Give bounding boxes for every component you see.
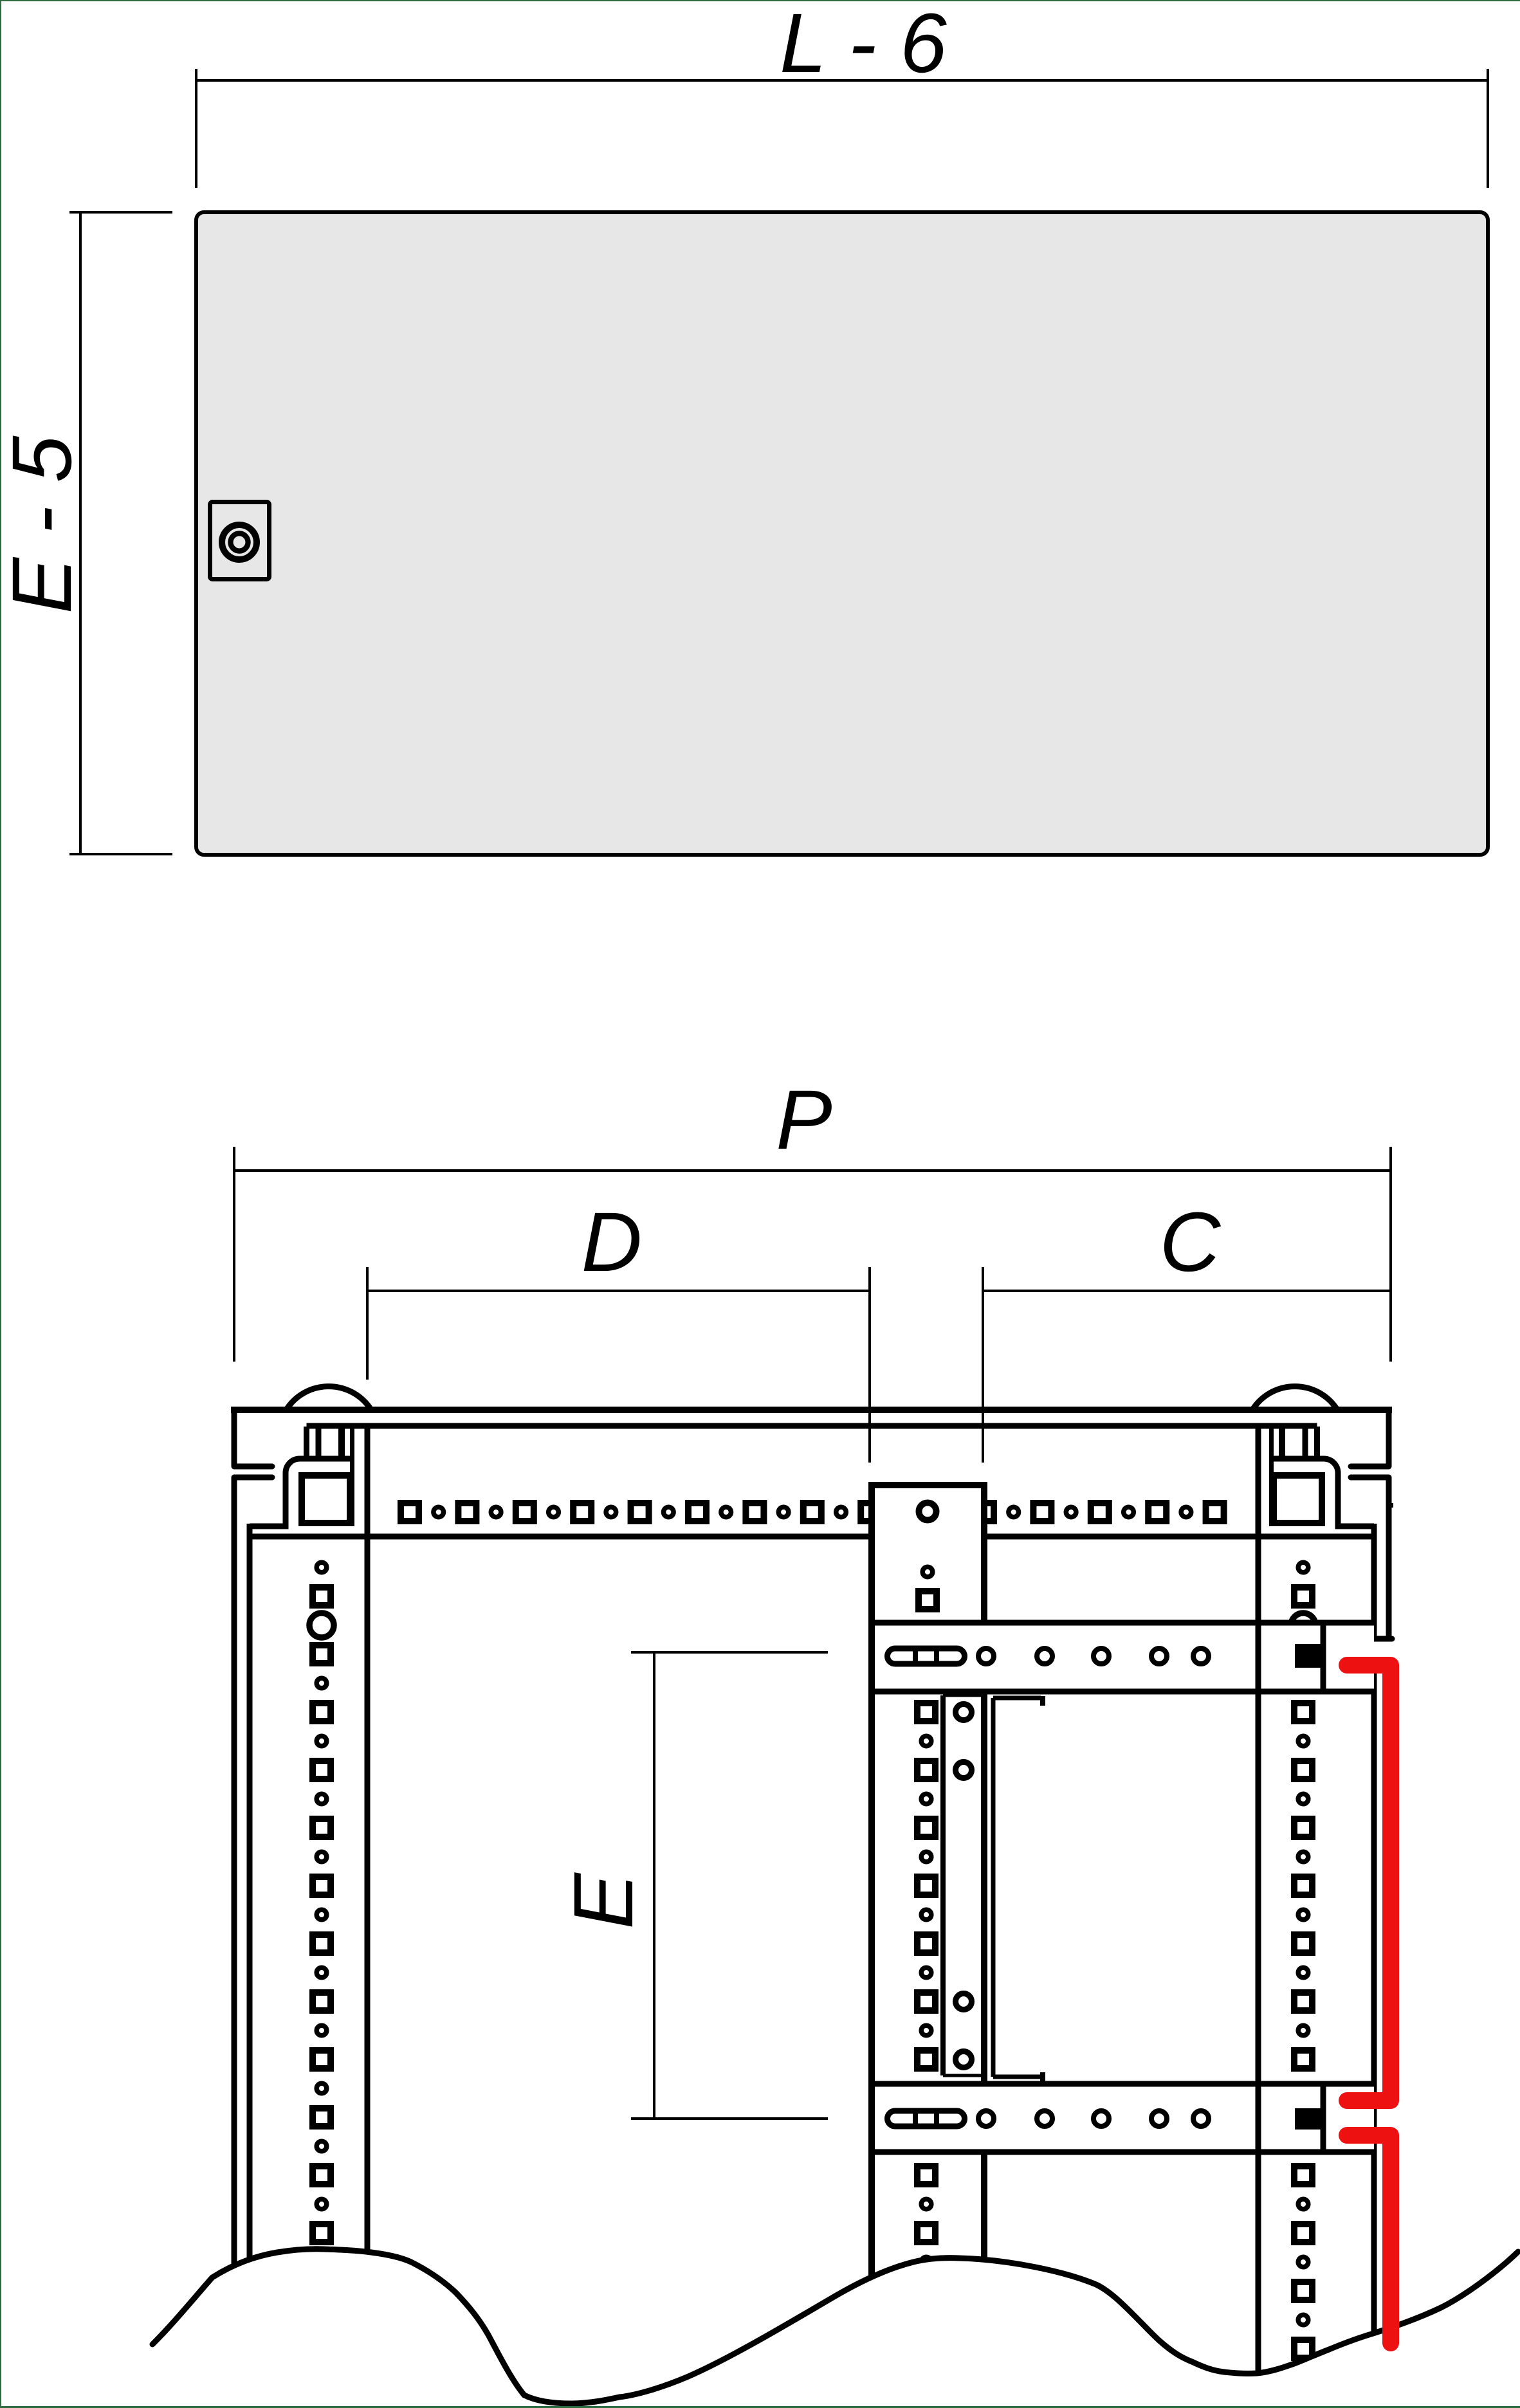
svg-text:E: E: [556, 1872, 650, 1929]
svg-text:C: C: [1160, 1194, 1222, 1289]
svg-text:L - 6: L - 6: [780, 0, 947, 90]
svg-text:E - 5: E - 5: [0, 435, 89, 614]
svg-text:P: P: [776, 1072, 832, 1167]
svg-text:D: D: [581, 1194, 643, 1289]
